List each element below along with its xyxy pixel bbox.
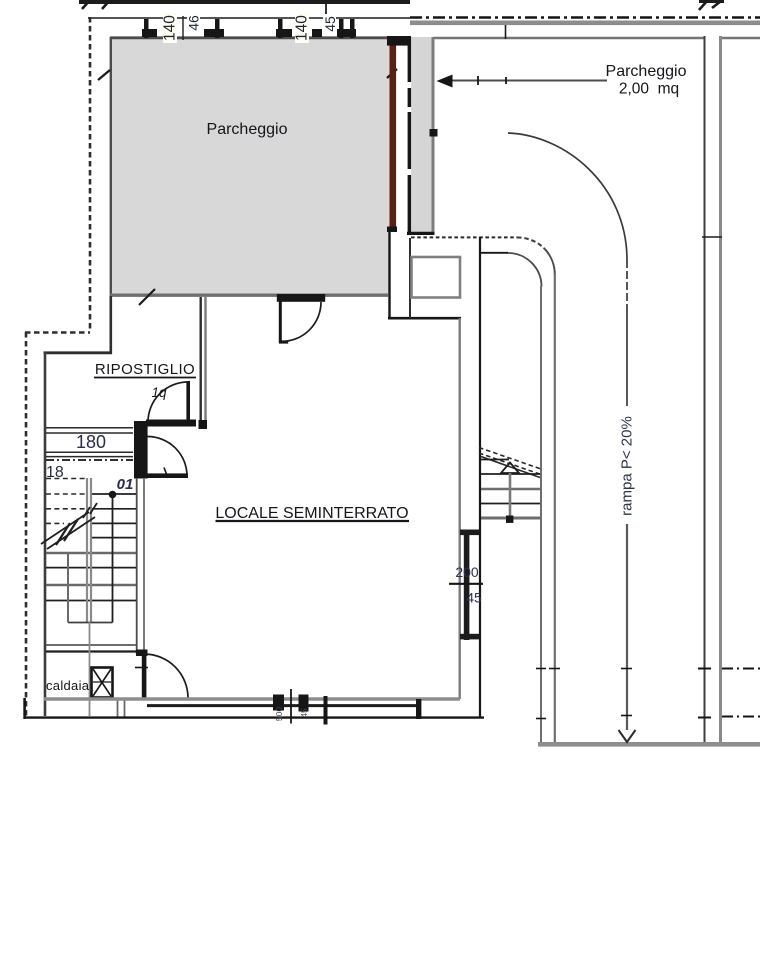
svg-text:Parcheggio: Parcheggio bbox=[207, 121, 288, 138]
svg-text:caldaia: caldaia bbox=[46, 678, 90, 693]
svg-text:LOCALE SEMINTERRATO: LOCALE SEMINTERRATO bbox=[215, 505, 408, 522]
svg-text:rampa P< 20%: rampa P< 20% bbox=[619, 416, 636, 516]
svg-text:180: 180 bbox=[76, 432, 106, 452]
svg-text:45: 45 bbox=[299, 708, 309, 718]
svg-text:RIPOSTIGLIO: RIPOSTIGLIO bbox=[95, 361, 195, 378]
svg-text:45: 45 bbox=[466, 590, 482, 606]
svg-text:200: 200 bbox=[455, 564, 479, 580]
svg-text:2,00 mq: 2,00 mq bbox=[619, 81, 679, 98]
svg-text:500: 500 bbox=[274, 707, 284, 721]
svg-text:45: 45 bbox=[322, 16, 338, 32]
svg-text:140: 140 bbox=[162, 15, 179, 41]
svg-text:1q: 1q bbox=[151, 385, 167, 400]
svg-text:Parcheggio: Parcheggio bbox=[606, 63, 687, 80]
svg-text:46: 46 bbox=[186, 15, 202, 31]
svg-text:140: 140 bbox=[294, 15, 311, 41]
svg-text:01: 01 bbox=[117, 476, 134, 493]
